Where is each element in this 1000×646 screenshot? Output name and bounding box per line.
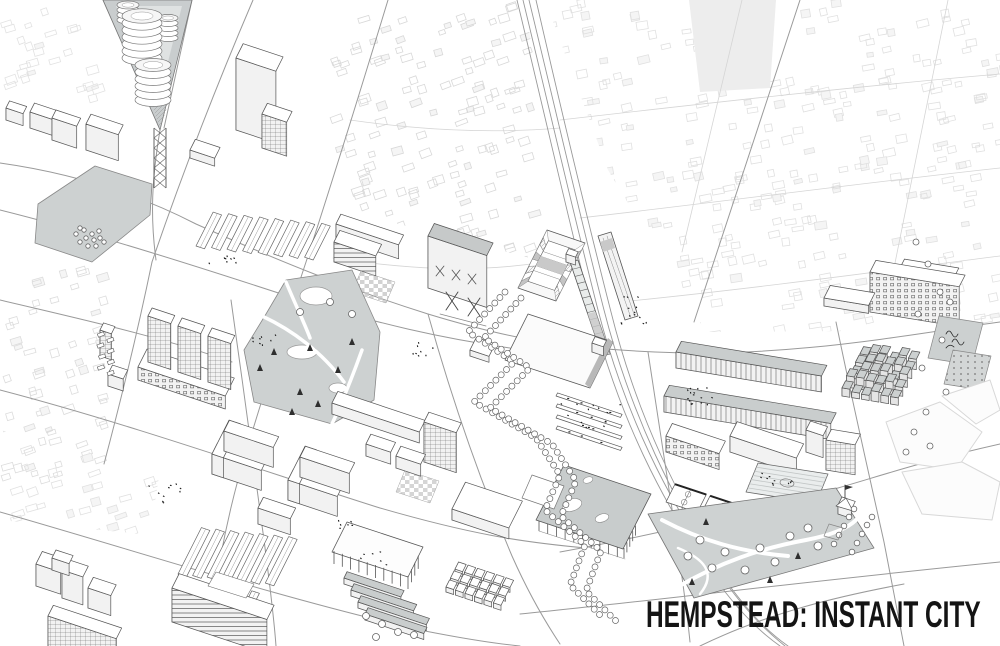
city-drawing-svg xyxy=(0,0,1000,646)
drawing-title: HEMPSTEAD: INSTANT CITY xyxy=(646,594,981,636)
axonometric-masterplan: HEMPSTEAD: INSTANT CITY xyxy=(0,0,1000,646)
